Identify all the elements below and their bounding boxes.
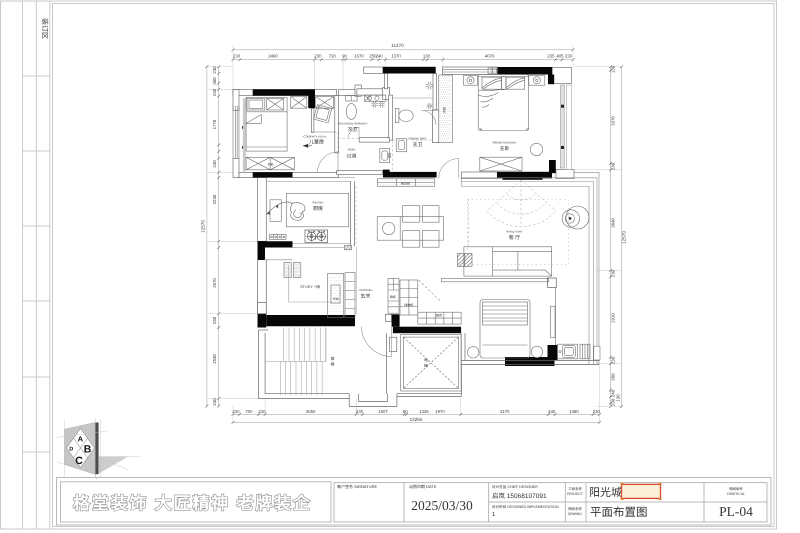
svg-text:230: 230 bbox=[212, 88, 217, 96]
svg-text:2910: 2910 bbox=[611, 313, 616, 323]
svg-text:图纸名称: 图纸名称 bbox=[568, 507, 582, 511]
svg-text:-living room-: -living room- bbox=[506, 230, 524, 234]
svg-text:启岚 15068107091: 启岚 15068107091 bbox=[492, 492, 547, 500]
svg-text:设计总监 CHIEF DESIGNER: 设计总监 CHIEF DESIGNER bbox=[492, 484, 538, 489]
svg-text:-Aisle-: -Aisle- bbox=[347, 148, 356, 152]
svg-text:DRWING: DRWING bbox=[568, 512, 582, 516]
svg-text:过道: 过道 bbox=[346, 153, 356, 160]
svg-text:230: 230 bbox=[611, 162, 616, 170]
svg-text:230: 230 bbox=[314, 54, 322, 59]
svg-text:13265: 13265 bbox=[410, 417, 423, 422]
svg-text:格堂装饰 大匠精神 老牌装企: 格堂装饰 大匠精神 老牌装企 bbox=[73, 494, 312, 513]
svg-text:230: 230 bbox=[565, 54, 573, 59]
svg-text:12570: 12570 bbox=[622, 231, 627, 244]
svg-text:240: 240 bbox=[376, 54, 384, 59]
svg-text:衣柜: 衣柜 bbox=[443, 107, 447, 113]
svg-text:235: 235 bbox=[547, 54, 555, 59]
svg-text:1507: 1507 bbox=[378, 409, 388, 414]
svg-text:PL-04: PL-04 bbox=[719, 504, 753, 519]
svg-text:A: A bbox=[78, 435, 84, 444]
svg-text:-Master bedroom-: -Master bedroom- bbox=[492, 141, 517, 145]
svg-text:230: 230 bbox=[356, 409, 364, 414]
svg-text:主卫: 主卫 bbox=[412, 141, 422, 148]
svg-text:装: 装 bbox=[41, 18, 49, 25]
svg-text:设计阶段 DESIGNED IMPLEMENTATION: 设计阶段 DESIGNED IMPLEMENTATION bbox=[492, 504, 559, 509]
svg-text:-Secondary defender-: -Secondary defender- bbox=[337, 122, 368, 126]
svg-text:405: 405 bbox=[556, 54, 564, 59]
svg-text:1326: 1326 bbox=[419, 409, 429, 414]
svg-text:12570: 12570 bbox=[201, 220, 206, 233]
svg-text:2530: 2530 bbox=[212, 354, 217, 364]
svg-text:3640: 3640 bbox=[611, 218, 616, 228]
svg-text:230: 230 bbox=[212, 66, 217, 74]
svg-text:1380: 1380 bbox=[569, 409, 579, 414]
svg-text:1970: 1970 bbox=[435, 409, 445, 414]
svg-text:玄关: 玄关 bbox=[360, 293, 370, 300]
svg-text:梯: 梯 bbox=[424, 363, 428, 368]
svg-text:C: C bbox=[75, 455, 83, 467]
svg-text:720: 720 bbox=[329, 54, 337, 59]
svg-text:360: 360 bbox=[212, 77, 217, 85]
svg-text:DRWTK NL: DRWTK NL bbox=[727, 492, 745, 496]
svg-text:130: 130 bbox=[423, 54, 431, 59]
svg-text:240: 240 bbox=[212, 160, 217, 168]
svg-text:B: B bbox=[84, 444, 92, 456]
svg-text:客户签名 SIGNATURE: 客户签名 SIGNATURE bbox=[337, 484, 377, 489]
svg-text:230: 230 bbox=[611, 269, 616, 277]
svg-text:厨房: 厨房 bbox=[313, 205, 323, 212]
svg-text:230: 230 bbox=[593, 409, 601, 414]
svg-text:2490: 2490 bbox=[268, 54, 278, 59]
svg-text:-Vestibule-: -Vestibule- bbox=[358, 288, 373, 292]
svg-text:楼: 楼 bbox=[331, 356, 335, 361]
svg-text:960: 960 bbox=[611, 373, 616, 381]
svg-text:1670: 1670 bbox=[354, 54, 364, 59]
svg-text:230: 230 bbox=[233, 54, 241, 59]
svg-text:130: 130 bbox=[611, 65, 616, 73]
svg-text:2230: 2230 bbox=[212, 194, 217, 204]
svg-text:鞋凳: 鞋凳 bbox=[436, 314, 442, 318]
svg-text:-Children's room-: -Children's room- bbox=[302, 135, 326, 139]
svg-text:PROJECT: PROJECT bbox=[567, 492, 583, 496]
svg-text:230: 230 bbox=[611, 356, 616, 364]
svg-text:130: 130 bbox=[616, 394, 621, 402]
svg-text:餐边柜: 餐边柜 bbox=[401, 181, 410, 185]
svg-text:客 厅: 客 厅 bbox=[509, 234, 520, 241]
svg-text:区: 区 bbox=[41, 32, 49, 39]
svg-text:230: 230 bbox=[212, 316, 217, 324]
svg-text:230: 230 bbox=[258, 409, 266, 414]
svg-text:书桌: 书桌 bbox=[333, 297, 339, 301]
svg-text:240: 240 bbox=[548, 409, 556, 414]
svg-text:平面布置图: 平面布置图 bbox=[590, 506, 648, 519]
svg-text:-Kitchen-: -Kitchen- bbox=[312, 201, 325, 205]
svg-text:3370: 3370 bbox=[611, 116, 616, 126]
svg-text:90: 90 bbox=[342, 54, 347, 59]
svg-text:梯: 梯 bbox=[331, 361, 335, 366]
svg-text:2670: 2670 bbox=[212, 278, 217, 288]
svg-text:1370: 1370 bbox=[391, 54, 401, 59]
svg-text:主卧: 主卧 bbox=[499, 145, 509, 152]
svg-text:鞋柜: 鞋柜 bbox=[390, 295, 396, 299]
svg-text:240: 240 bbox=[212, 398, 217, 406]
svg-text:工程名称: 工程名称 bbox=[568, 487, 582, 491]
svg-text:图纸编号: 图纸编号 bbox=[729, 487, 743, 491]
svg-text:出图日期 DATE: 出图日期 DATE bbox=[409, 484, 437, 489]
svg-text:2025/03/30: 2025/03/30 bbox=[411, 498, 473, 513]
svg-text:电: 电 bbox=[424, 358, 428, 363]
svg-text:230: 230 bbox=[232, 409, 240, 414]
svg-text:3650: 3650 bbox=[306, 409, 316, 414]
svg-text:-Master bath-: -Master bath- bbox=[408, 137, 427, 141]
svg-text:次卫: 次卫 bbox=[347, 126, 357, 133]
svg-text:阳光城: 阳光城 bbox=[589, 486, 622, 499]
svg-text:储物柜: 储物柜 bbox=[404, 303, 413, 307]
svg-text:D: D bbox=[69, 447, 73, 453]
svg-text:80: 80 bbox=[403, 409, 408, 414]
svg-text:1770: 1770 bbox=[212, 119, 217, 129]
svg-text:STUDY +储: STUDY +储 bbox=[300, 284, 320, 289]
svg-text:订: 订 bbox=[41, 25, 49, 32]
svg-text:儿童房: 儿童房 bbox=[309, 138, 324, 145]
svg-text:11270: 11270 bbox=[391, 43, 404, 48]
svg-text:700: 700 bbox=[245, 409, 253, 414]
svg-text:衣柜: 衣柜 bbox=[267, 163, 273, 167]
svg-text:4070: 4070 bbox=[485, 54, 495, 59]
svg-text:3170: 3170 bbox=[500, 409, 510, 414]
